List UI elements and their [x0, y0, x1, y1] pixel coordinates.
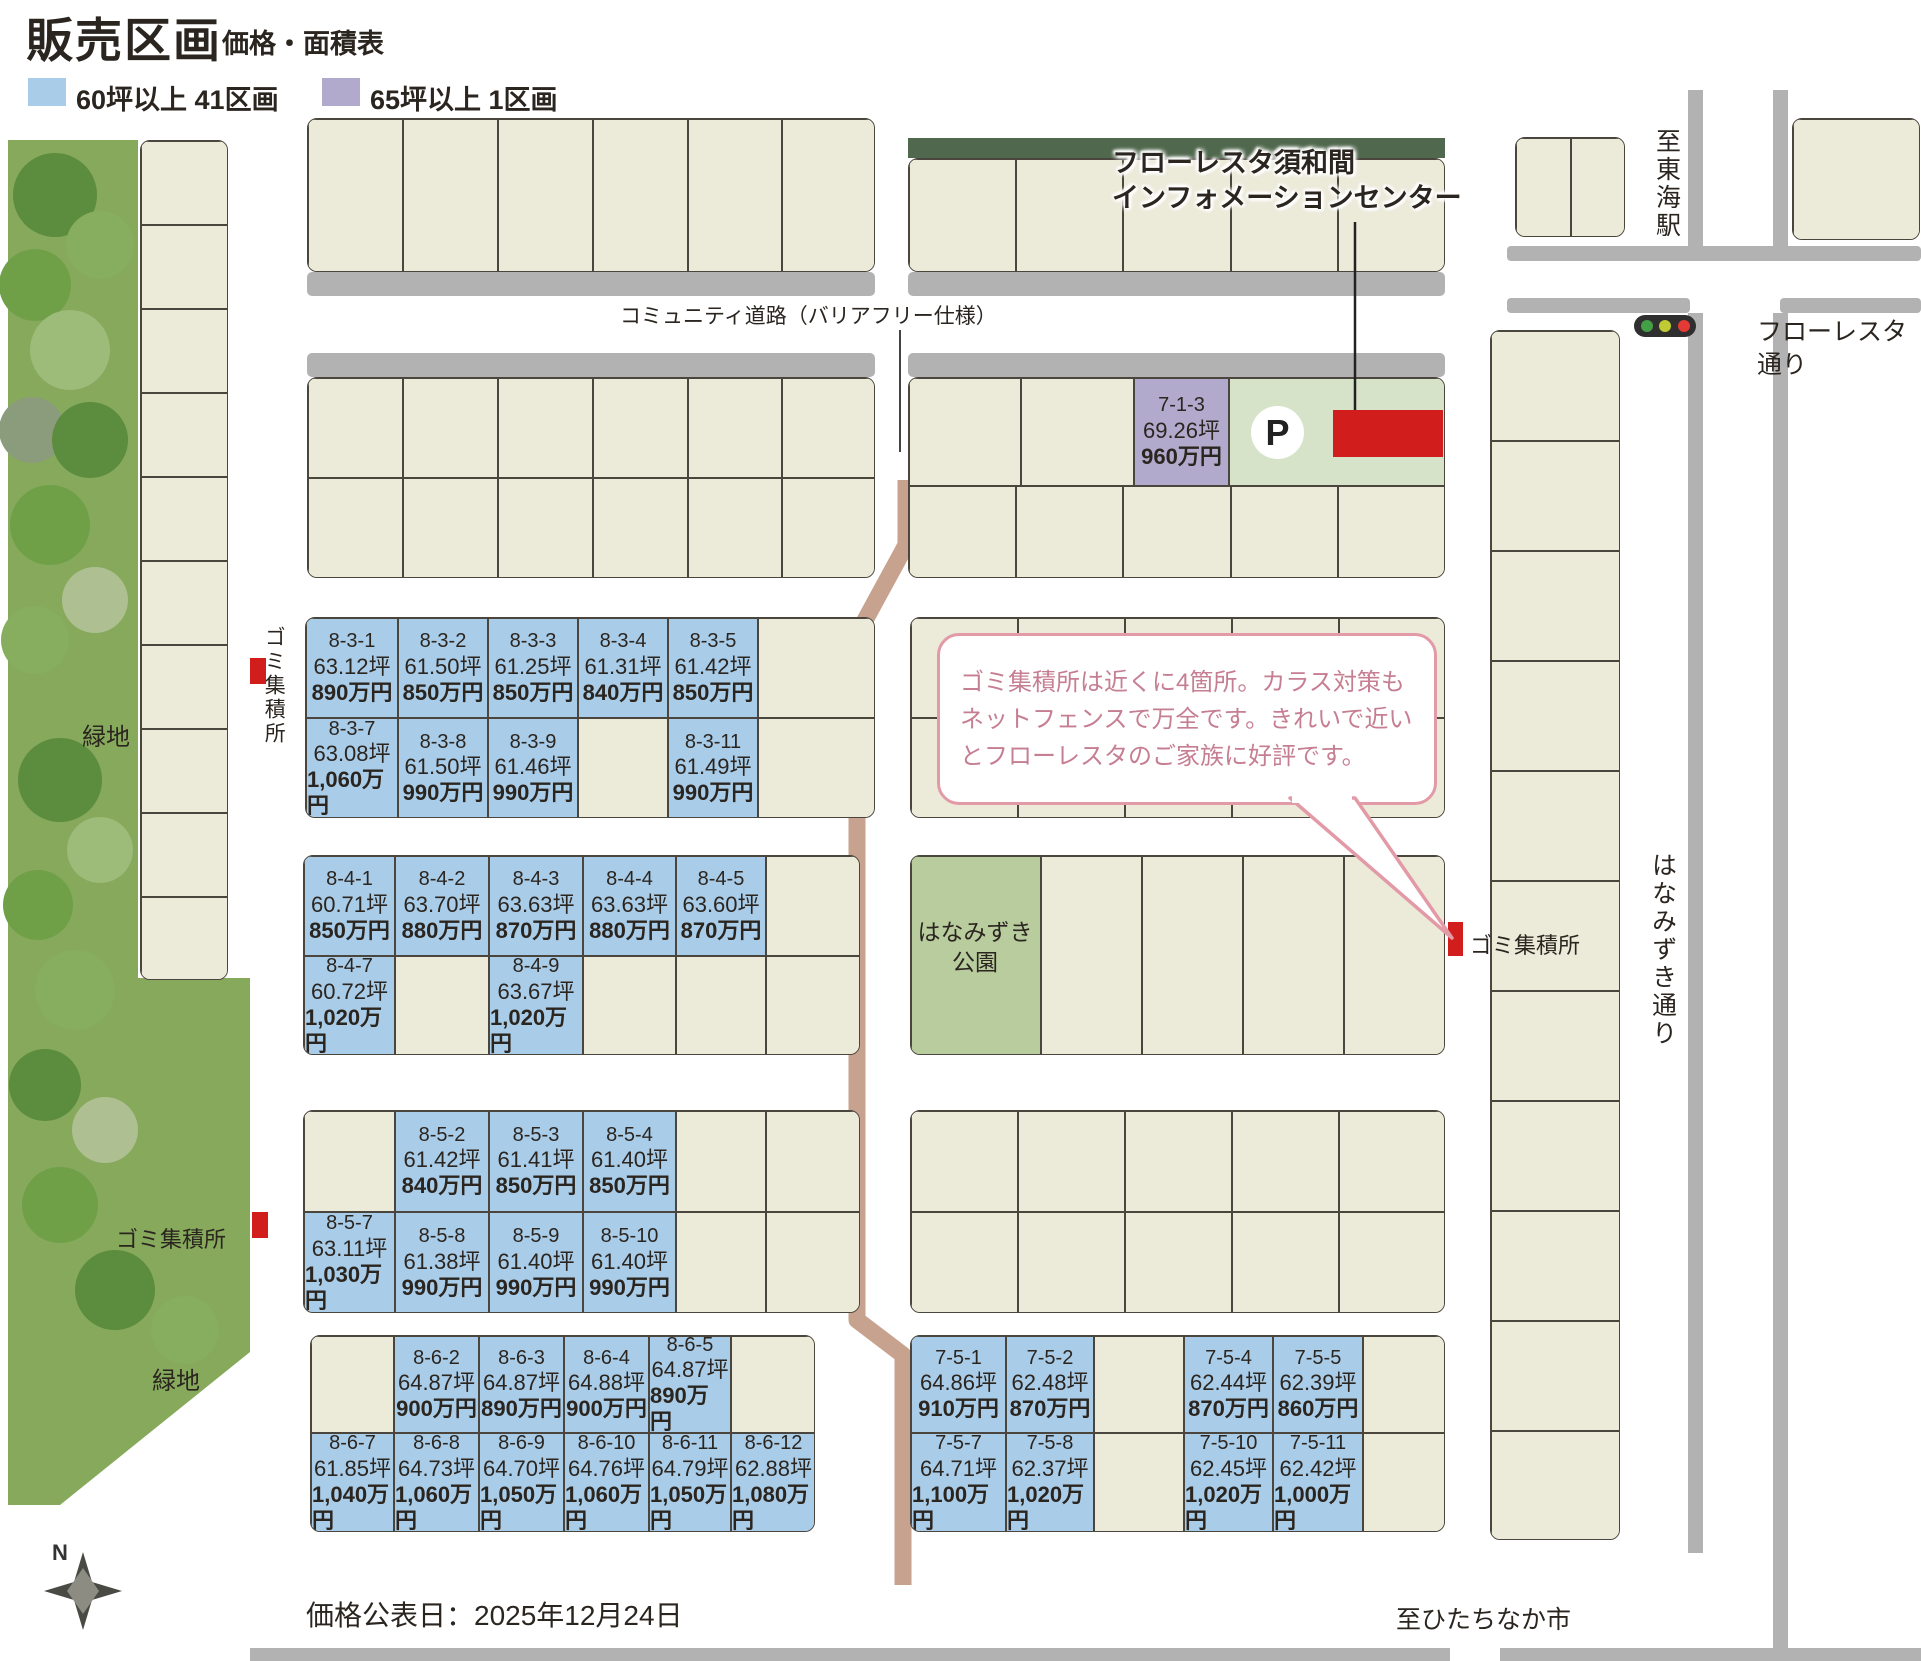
compass-icon: N [44, 1540, 122, 1630]
garbage-station-marker-3 [1448, 922, 1463, 956]
garbage-info-callout: ゴミ集積所は近くに4箇所。カラス対策も ネットフェンスで万全です。きれいで近い … [937, 633, 1437, 805]
garbage-info-text: ゴミ集積所は近くに4箇所。カラス対策も ネットフェンスで万全です。きれいで近い … [940, 654, 1432, 785]
compass-n-label: N [52, 1540, 68, 1565]
garbage-station-marker-1 [250, 658, 266, 684]
garbage-station-marker-2 [252, 1212, 268, 1238]
map-overlay-graphics: N [0, 0, 1921, 1661]
site-plan-map: 販売区画 価格・面積表 60坪以上 41区画 65坪以上 1区画 7-1-369… [0, 0, 1921, 1661]
